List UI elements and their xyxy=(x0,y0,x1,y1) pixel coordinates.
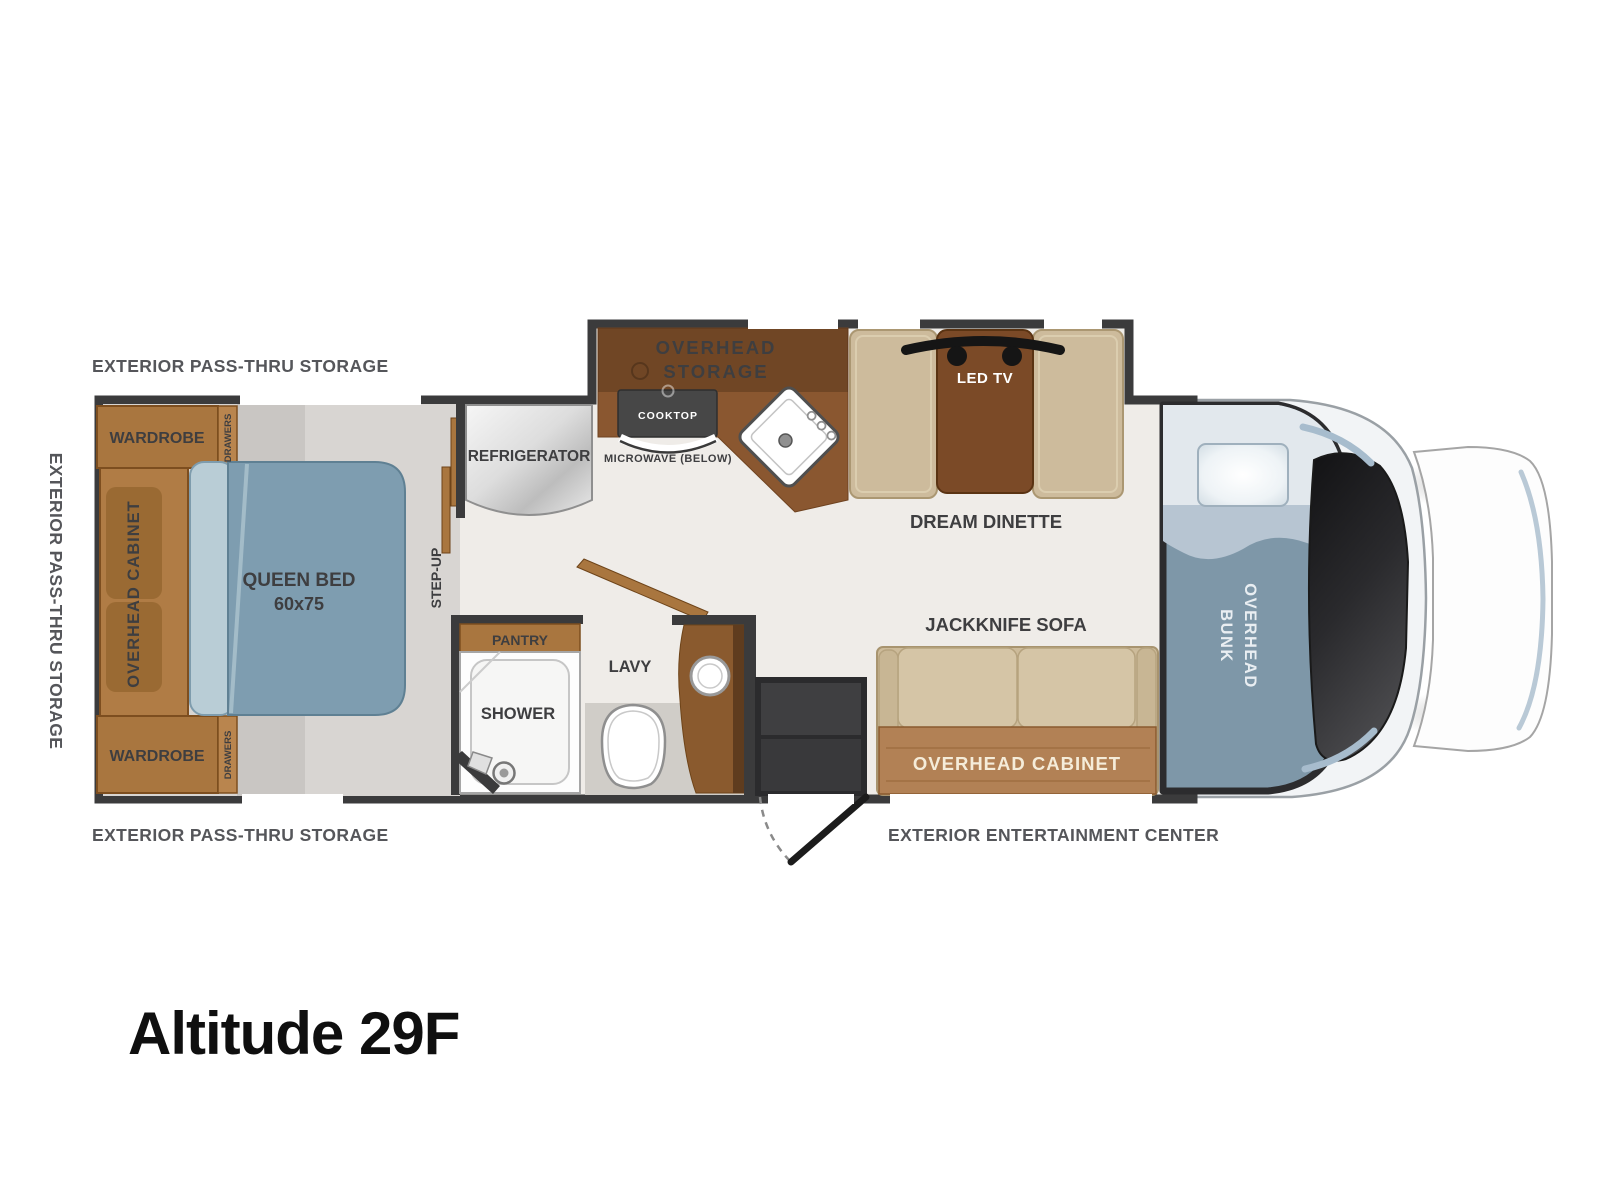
sofa-overhead-cabinet-label: OVERHEAD CABINET xyxy=(913,753,1121,774)
vanity-side xyxy=(733,625,744,793)
window xyxy=(748,319,838,329)
step-up-door-slat xyxy=(442,467,450,553)
floorplan-page: EXTERIOR PASS-THRU STORAGE EXTERIOR PASS… xyxy=(0,0,1600,1200)
jackknife-sofa-label: JACKKNIFE SOFA xyxy=(925,614,1086,635)
dream-dinette-label: DREAM DINETTE xyxy=(910,511,1062,532)
entry-step-upper xyxy=(761,683,861,735)
overhead-cabinet-label: OVERHEAD CABINET xyxy=(125,500,143,687)
bunk-label-line1: OVERHEAD xyxy=(1241,583,1259,689)
bath-wall-right xyxy=(744,615,756,797)
exterior-entertainment-label: EXTERIOR ENTERTAINMENT CENTER xyxy=(888,825,1219,845)
window xyxy=(768,794,854,804)
floorplan-title: Altitude 29F xyxy=(128,1000,459,1067)
toilet xyxy=(602,705,665,788)
bath-wall-top xyxy=(451,615,583,624)
bath-wall-left xyxy=(451,615,460,795)
microwave-label: MICROWAVE (BELOW) xyxy=(604,453,732,465)
window xyxy=(240,395,421,405)
window xyxy=(858,319,920,329)
drawers-bottom-label: DRAWERS xyxy=(223,731,234,780)
vanity-sink xyxy=(691,657,729,695)
overhead-storage-label-2: STORAGE xyxy=(663,361,768,382)
bunk-label-line2: BUNK xyxy=(1217,609,1235,663)
bedroom-slide-floor-bottom xyxy=(237,716,305,796)
shower-drain-center xyxy=(500,769,509,778)
bath-door-header xyxy=(672,615,752,625)
wardrobe-top-label: WARDROBE xyxy=(109,430,204,447)
step-up-label: STEP-UP xyxy=(428,548,444,609)
lavy-label: LAVY xyxy=(609,658,652,676)
window xyxy=(1044,319,1102,329)
wall-stub-fridge xyxy=(456,398,465,518)
exterior-pass-thru-left-label: EXTERIOR PASS-THRU STORAGE xyxy=(46,453,66,750)
overhead-storage-label-1: OVERHEAD xyxy=(656,337,777,358)
exterior-pass-thru-top-label: EXTERIOR PASS-THRU STORAGE xyxy=(92,356,389,376)
dinette-bench-left xyxy=(850,330,937,498)
exterior-pass-thru-bottom-label: EXTERIOR PASS-THRU STORAGE xyxy=(92,825,389,845)
bedroom-slide-floor-top xyxy=(237,404,305,470)
led-tv-label: LED TV xyxy=(957,370,1013,387)
refrigerator-label: REFRIGERATOR xyxy=(468,448,591,465)
drawers-top-label: DRAWERS xyxy=(223,414,234,463)
sofa-cushion xyxy=(1018,648,1135,728)
cooktop-label: COOKTOP xyxy=(638,410,698,422)
dinette xyxy=(850,330,1123,498)
sofa-cushion xyxy=(898,648,1017,728)
pantry-label: PANTRY xyxy=(492,632,549,648)
shower-label: SHOWER xyxy=(481,705,555,723)
tv-mount xyxy=(947,346,967,366)
dinette-bench-right xyxy=(1033,330,1123,498)
wardrobe-bottom-label: WARDROBE xyxy=(109,748,204,765)
window xyxy=(242,794,343,804)
queen-bed-size: 60x75 xyxy=(274,594,324,614)
window xyxy=(890,794,1152,804)
entry-step-lower xyxy=(761,739,861,791)
queen-bed-label: QUEEN BED xyxy=(243,570,356,591)
tv-mount xyxy=(1002,346,1022,366)
bunk-pillow xyxy=(1198,444,1288,506)
floorplan-diagram: EXTERIOR PASS-THRU STORAGE EXTERIOR PASS… xyxy=(0,0,1600,1200)
